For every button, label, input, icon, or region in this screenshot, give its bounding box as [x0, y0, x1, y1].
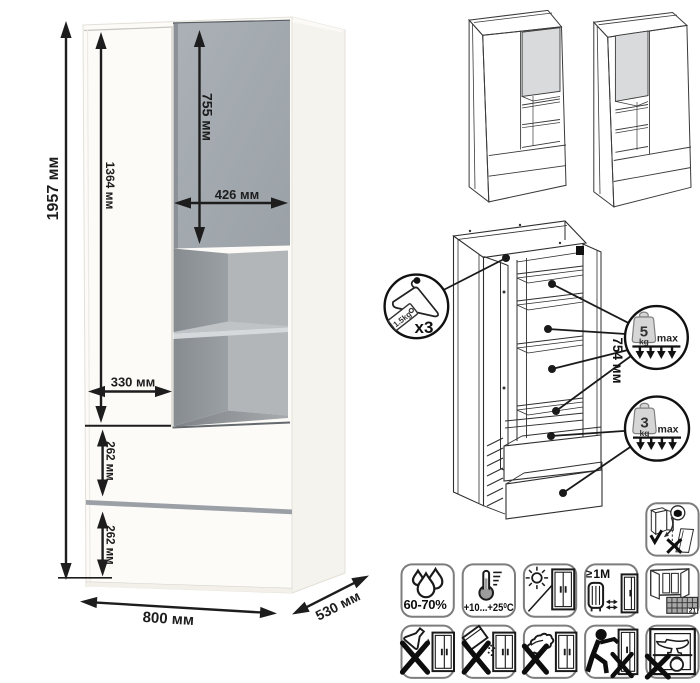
svg-text:530 мм: 530 мм	[313, 588, 363, 624]
svg-text:262 мм: 262 мм	[104, 441, 116, 480]
svg-text:60-70%: 60-70%	[403, 597, 447, 612]
svg-text:kg: kg	[639, 337, 649, 347]
svg-text:x3: x3	[415, 318, 434, 337]
svg-text:max: max	[657, 333, 678, 345]
svg-text:1364 мм: 1364 мм	[103, 162, 117, 210]
svg-text:+10...+250C: +10...+250C	[464, 601, 514, 614]
svg-text:1957 мм: 1957 мм	[45, 157, 62, 221]
svg-text:kg: kg	[640, 428, 650, 438]
svg-text:800 мм: 800 мм	[142, 609, 194, 629]
svg-text:max: max	[657, 424, 678, 436]
svg-text:1M: 1M	[593, 567, 610, 581]
svg-text:755 мм: 755 мм	[200, 93, 216, 141]
svg-text:262 мм: 262 мм	[104, 525, 116, 564]
svg-text:21: 21	[689, 607, 697, 614]
svg-text:≥: ≥	[586, 569, 593, 581]
svg-text:754 мм: 754 мм	[610, 337, 625, 383]
svg-text:330 мм: 330 мм	[111, 375, 156, 390]
svg-text:426 мм: 426 мм	[215, 187, 260, 202]
